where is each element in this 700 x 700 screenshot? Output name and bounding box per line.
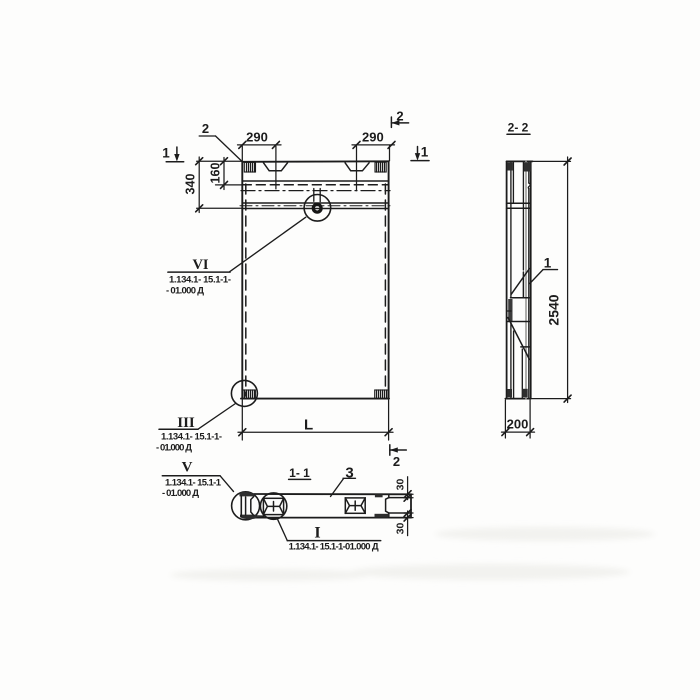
svg-text:1.134.1- 15.1-1-: 1.134.1- 15.1-1- <box>169 275 231 286</box>
svg-text:2: 2 <box>202 121 209 136</box>
svg-text:2540: 2540 <box>546 294 562 325</box>
svg-text:1: 1 <box>544 256 552 271</box>
svg-text:290: 290 <box>246 130 268 145</box>
svg-text:340: 340 <box>184 174 198 195</box>
svg-text:3: 3 <box>345 465 353 482</box>
svg-text:290: 290 <box>362 130 384 145</box>
svg-text:VI: VI <box>192 257 208 273</box>
svg-text:I: I <box>314 525 320 542</box>
svg-text:1: 1 <box>162 146 170 161</box>
svg-text:V: V <box>182 460 193 476</box>
svg-text:L: L <box>304 417 313 434</box>
svg-text:30: 30 <box>395 523 407 535</box>
svg-text:2: 2 <box>396 109 403 124</box>
svg-text:2- 2: 2- 2 <box>508 121 529 135</box>
svg-text:1- 1: 1- 1 <box>289 466 310 480</box>
svg-text:- 01.000 Д: - 01.000 Д <box>156 443 192 454</box>
svg-text:III: III <box>177 415 195 431</box>
svg-text:- 01.000 Д: - 01.000 Д <box>162 488 199 499</box>
svg-text:1.134.1- 15.1-1-: 1.134.1- 15.1-1- <box>161 432 222 443</box>
svg-text:- 01.000 Д: - 01.000 Д <box>166 286 204 297</box>
svg-text:2: 2 <box>393 454 400 469</box>
svg-text:1: 1 <box>421 145 429 160</box>
svg-text:160: 160 <box>209 163 223 184</box>
svg-text:1.134.1- 15.1-1: 1.134.1- 15.1-1 <box>165 478 222 489</box>
svg-text:1.134.1- 15.1-1-01.000 Д: 1.134.1- 15.1-1-01.000 Д <box>289 542 379 553</box>
svg-text:200: 200 <box>507 416 529 431</box>
svg-text:30: 30 <box>395 479 407 491</box>
